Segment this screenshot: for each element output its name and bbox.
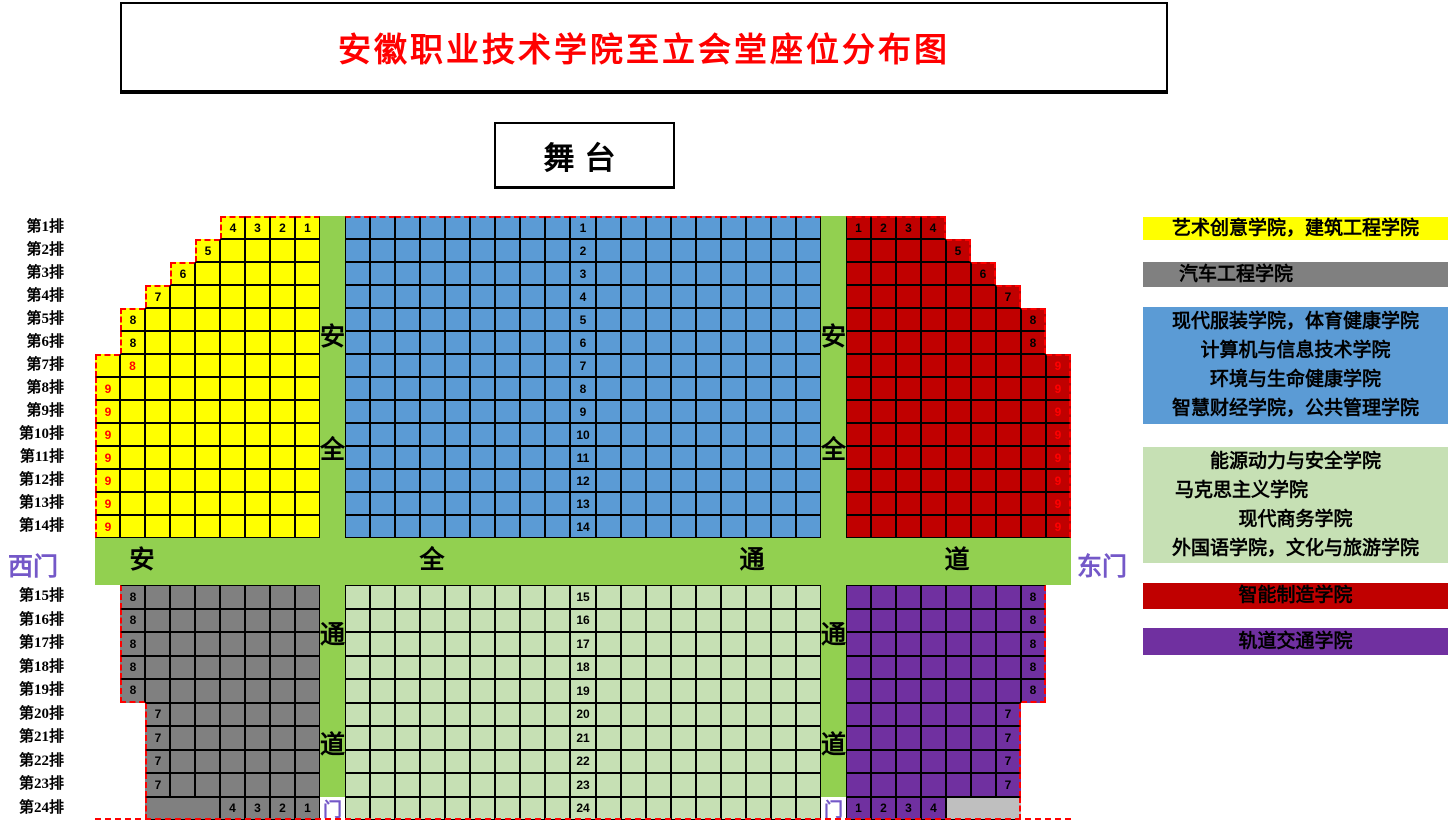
seat-cell — [395, 308, 420, 331]
seat-number-label: 7 — [145, 773, 170, 797]
seat-cell — [621, 492, 646, 515]
legend-item: 智能制造学院 — [1143, 583, 1448, 609]
seat-cell — [545, 239, 570, 262]
seat-cell — [846, 331, 871, 354]
seat-cell — [796, 703, 821, 727]
seat-cell — [245, 703, 270, 727]
seat-cell — [846, 632, 871, 656]
seat-number-label: 7 — [145, 750, 170, 774]
seat-cell — [746, 656, 771, 680]
seat-cell — [520, 773, 545, 797]
seat-cell — [395, 609, 420, 633]
seat-cell — [345, 469, 370, 492]
seat-cell — [545, 632, 570, 656]
seat-cell — [245, 423, 270, 446]
seat-cell — [345, 308, 370, 331]
seat-number-label: 7 — [996, 750, 1021, 774]
seat-cell — [420, 354, 445, 377]
seat-cell — [646, 679, 671, 703]
seat-cell — [170, 703, 195, 727]
seat-cell — [245, 515, 270, 538]
seat-cell — [796, 331, 821, 354]
row-label: 第17排 — [0, 632, 64, 656]
seat-cell — [295, 377, 320, 400]
seat-cell — [671, 239, 696, 262]
seat-cell — [395, 331, 420, 354]
row-label: 第1排 — [0, 216, 64, 239]
seat-cell — [771, 354, 796, 377]
seat-cell — [796, 469, 821, 492]
seat-cell — [746, 750, 771, 774]
seat-cell — [671, 492, 696, 515]
west-gate-label: 西门 — [2, 547, 64, 583]
seat-cell — [245, 656, 270, 680]
seat-cell — [495, 679, 520, 703]
seat-cell — [846, 750, 871, 774]
seat-cell — [621, 308, 646, 331]
seat-cell — [445, 331, 470, 354]
seat-cell — [946, 446, 971, 469]
seat-cell — [445, 750, 470, 774]
seat-cell — [295, 703, 320, 727]
seat-cell — [220, 469, 245, 492]
seat-cell — [996, 656, 1021, 680]
seat-cell — [420, 469, 445, 492]
seat-cell — [495, 703, 520, 727]
seat-cell — [495, 354, 520, 377]
seat-cell — [846, 492, 871, 515]
seat-cell — [896, 331, 921, 354]
seat-cell — [445, 308, 470, 331]
seat-number-label: 8 — [1021, 679, 1046, 703]
seat-cell — [871, 656, 896, 680]
seat-cell — [370, 400, 395, 423]
seat-cell — [495, 656, 520, 680]
seat-cell — [796, 423, 821, 446]
seat-cell — [646, 469, 671, 492]
vertical-aisle-char: 全 — [821, 437, 846, 465]
seat-cell — [696, 354, 721, 377]
seat-number-label: 1 — [295, 216, 320, 239]
seat-cell — [721, 216, 746, 239]
seat-cell — [796, 216, 821, 239]
seat-cell — [646, 354, 671, 377]
seat-cell — [495, 469, 520, 492]
seat-cell — [395, 377, 420, 400]
seat-cell — [145, 585, 170, 609]
legend-label: 马克思主义学院 — [1143, 476, 1448, 505]
row-number-cell: 16 — [570, 609, 596, 633]
seat-cell — [420, 703, 445, 727]
seat-cell — [671, 679, 696, 703]
seat-cell — [621, 726, 646, 750]
seat-cell — [270, 726, 295, 750]
seat-cell — [646, 726, 671, 750]
seat-cell — [120, 400, 145, 423]
seat-cell — [1021, 400, 1046, 423]
row-label: 第8排 — [0, 377, 64, 400]
seat-cell — [971, 331, 996, 354]
seat-cell — [946, 285, 971, 308]
seat-cell — [170, 308, 195, 331]
seat-cell — [696, 308, 721, 331]
seat-number-label: 9 — [1046, 515, 1071, 538]
seat-cell — [395, 469, 420, 492]
legend-label: 计算机与信息技术学院 — [1143, 336, 1448, 365]
stage-box: 舞台 — [494, 122, 675, 189]
row-number-cell: 13 — [570, 492, 596, 515]
seat-cell — [545, 308, 570, 331]
seat-cell — [395, 354, 420, 377]
seat-cell — [370, 750, 395, 774]
seat-cell — [771, 797, 796, 821]
seat-cell — [846, 609, 871, 633]
seat-cell — [345, 632, 370, 656]
seat-cell — [796, 585, 821, 609]
seat-cell — [996, 308, 1021, 331]
seat-number-label: 4 — [921, 216, 946, 239]
seat-cell — [771, 492, 796, 515]
seat-cell — [445, 377, 470, 400]
seat-cell — [195, 469, 220, 492]
row-number-cell: 17 — [570, 632, 596, 656]
seat-cell — [520, 515, 545, 538]
seat-cell — [520, 750, 545, 774]
seat-cell — [370, 423, 395, 446]
row-number-cell: 15 — [570, 585, 596, 609]
seat-cell — [295, 446, 320, 469]
seat-cell — [245, 726, 270, 750]
seat-cell — [871, 492, 896, 515]
seat-cell — [520, 632, 545, 656]
seat-cell — [495, 585, 520, 609]
seat-cell — [420, 308, 445, 331]
row-label: 第10排 — [0, 423, 64, 446]
seat-cell — [420, 679, 445, 703]
seat-cell — [846, 377, 871, 400]
seat-cell — [395, 632, 420, 656]
seat-cell — [621, 679, 646, 703]
seat-cell — [220, 285, 245, 308]
seat-cell — [796, 632, 821, 656]
seat-cell — [696, 656, 721, 680]
seat-cell — [921, 656, 946, 680]
seat-cell — [671, 308, 696, 331]
seat-cell — [1021, 469, 1046, 492]
seat-cell — [545, 726, 570, 750]
seat-cell — [170, 632, 195, 656]
seat-cell — [270, 308, 295, 331]
legend-label: 外国语学院，文化与旅游学院 — [1143, 534, 1448, 563]
seat-cell — [295, 354, 320, 377]
seat-cell — [721, 308, 746, 331]
vertical-aisle-char: 安 — [821, 324, 846, 352]
seat-cell — [545, 750, 570, 774]
seat-cell — [621, 354, 646, 377]
seat-cell — [921, 726, 946, 750]
seat-cell — [245, 308, 270, 331]
seat-cell — [721, 515, 746, 538]
seat-cell — [520, 609, 545, 633]
seat-cell — [270, 285, 295, 308]
seat-cell — [170, 423, 195, 446]
seat-number-label: 8 — [120, 656, 145, 680]
seat-cell — [470, 656, 495, 680]
seat-cell — [771, 469, 796, 492]
seat-cell — [871, 377, 896, 400]
seat-cell — [621, 773, 646, 797]
seat-cell — [420, 656, 445, 680]
seat-cell — [946, 377, 971, 400]
seat-cell — [871, 585, 896, 609]
seat-cell — [520, 262, 545, 285]
legend-item: 能源动力与安全学院马克思主义学院现代商务学院外国语学院，文化与旅游学院 — [1143, 447, 1448, 563]
seat-cell — [646, 308, 671, 331]
seat-cell — [721, 239, 746, 262]
seat-cell — [646, 446, 671, 469]
seat-number-label: 6 — [971, 262, 996, 285]
seat-cell — [470, 400, 495, 423]
seat-cell — [921, 632, 946, 656]
seat-cell — [596, 750, 621, 774]
seat-cell — [896, 515, 921, 538]
seat-cell — [245, 750, 270, 774]
row-number-cell: 9 — [570, 400, 596, 423]
seat-cell — [245, 632, 270, 656]
seat-cell — [871, 750, 896, 774]
seat-cell — [971, 377, 996, 400]
seat-cell — [846, 400, 871, 423]
row-label: 第13排 — [0, 492, 64, 515]
seat-number-label: 7 — [996, 703, 1021, 727]
seat-cell — [1021, 446, 1046, 469]
seat-cell — [896, 632, 921, 656]
seat-cell — [445, 239, 470, 262]
seat-cell — [445, 703, 470, 727]
seat-cell — [220, 262, 245, 285]
seat-cell — [921, 262, 946, 285]
seat-cell — [295, 400, 320, 423]
seat-cell — [445, 797, 470, 821]
seat-cell — [771, 515, 796, 538]
row-number-cell: 7 — [570, 354, 596, 377]
seat-cell — [746, 239, 771, 262]
seat-cell — [270, 703, 295, 727]
seat-number-label: 9 — [95, 423, 120, 446]
vertical-aisle-char: 通 — [821, 622, 846, 650]
seat-cell — [771, 679, 796, 703]
seat-cell — [846, 423, 871, 446]
seat-cell — [721, 679, 746, 703]
door-label: 门 — [320, 797, 345, 821]
seat-cell — [445, 726, 470, 750]
seat-cell — [495, 515, 520, 538]
seat-cell — [746, 609, 771, 633]
seat-cell — [696, 679, 721, 703]
seat-cell — [796, 446, 821, 469]
seat-cell — [1021, 377, 1046, 400]
seat-cell — [445, 492, 470, 515]
seat-cell — [495, 400, 520, 423]
seat-number-label: 9 — [1046, 469, 1071, 492]
seat-cell — [696, 797, 721, 821]
seat-cell — [996, 609, 1021, 633]
seat-cell — [520, 797, 545, 821]
merged-block — [145, 797, 220, 821]
seat-cell — [220, 423, 245, 446]
seat-cell — [295, 632, 320, 656]
seat-cell — [545, 400, 570, 423]
seat-cell — [195, 285, 220, 308]
seat-cell — [771, 773, 796, 797]
seat-number-label: 9 — [95, 492, 120, 515]
row-label: 第19排 — [0, 679, 64, 703]
seat-cell — [345, 656, 370, 680]
seat-cell — [1021, 515, 1046, 538]
seat-cell — [345, 726, 370, 750]
seat-number-label: 4 — [220, 216, 245, 239]
seat-cell — [946, 703, 971, 727]
seat-cell — [345, 239, 370, 262]
seat-cell — [771, 632, 796, 656]
seat-cell — [971, 515, 996, 538]
seat-number-label: 8 — [1021, 632, 1046, 656]
seat-cell — [621, 515, 646, 538]
seat-cell — [345, 797, 370, 821]
seat-cell — [621, 239, 646, 262]
seat-cell — [370, 726, 395, 750]
seat-cell — [370, 469, 395, 492]
seat-cell — [646, 377, 671, 400]
legend-item: 艺术创意学院，建筑工程学院 — [1143, 217, 1448, 240]
seat-cell — [796, 515, 821, 538]
seat-cell — [370, 285, 395, 308]
seat-number-label: 3 — [245, 797, 270, 821]
horizontal-aisle-char: 安 — [128, 547, 156, 577]
horizontal-aisle-char: 通 — [738, 547, 766, 577]
seat-cell — [220, 773, 245, 797]
seat-number-label: 9 — [1046, 354, 1071, 377]
seat-cell — [545, 773, 570, 797]
seat-cell — [345, 492, 370, 515]
seat-cell — [796, 377, 821, 400]
seat-cell — [596, 609, 621, 633]
seat-cell — [495, 632, 520, 656]
seat-cell — [145, 656, 170, 680]
seat-cell — [921, 354, 946, 377]
seat-cell — [896, 239, 921, 262]
seat-cell — [420, 446, 445, 469]
seat-cell — [896, 609, 921, 633]
row-number-cell: 12 — [570, 469, 596, 492]
seat-cell — [721, 750, 746, 774]
seat-cell — [971, 703, 996, 727]
seat-cell — [470, 216, 495, 239]
seat-cell — [545, 262, 570, 285]
seat-cell — [420, 285, 445, 308]
seat-cell — [395, 400, 420, 423]
seat-number-label: 7 — [145, 285, 170, 308]
seat-cell — [470, 423, 495, 446]
seat-cell — [921, 585, 946, 609]
east-gate-label: 东门 — [1071, 547, 1133, 583]
seat-cell — [696, 285, 721, 308]
seat-cell — [395, 750, 420, 774]
seat-cell — [946, 469, 971, 492]
seat-cell — [771, 308, 796, 331]
seat-cell — [245, 239, 270, 262]
seat-cell — [245, 609, 270, 633]
seat-cell — [871, 239, 896, 262]
seat-cell — [596, 679, 621, 703]
seat-number-label: 1 — [846, 797, 871, 821]
vertical-aisle-char: 道 — [821, 732, 846, 760]
seat-cell — [671, 773, 696, 797]
left-vertical-aisle-rear — [320, 585, 345, 797]
seat-cell — [170, 331, 195, 354]
row-number-cell: 18 — [570, 656, 596, 680]
seat-cell — [921, 285, 946, 308]
seat-cell — [345, 216, 370, 239]
seat-cell — [420, 377, 445, 400]
seat-cell — [596, 726, 621, 750]
seat-cell — [220, 609, 245, 633]
seat-cell — [470, 609, 495, 633]
seat-number-label: 8 — [120, 679, 145, 703]
seat-cell — [520, 285, 545, 308]
seat-cell — [445, 354, 470, 377]
seat-cell — [996, 679, 1021, 703]
seat-cell — [495, 797, 520, 821]
seat-cell — [345, 609, 370, 633]
seat-cell — [395, 423, 420, 446]
seat-number-label: 7 — [145, 703, 170, 727]
seat-cell — [871, 773, 896, 797]
seat-cell — [671, 331, 696, 354]
legend-label: 环境与生命健康学院 — [1143, 365, 1448, 394]
seat-cell — [545, 585, 570, 609]
seat-cell — [596, 469, 621, 492]
seat-cell — [971, 773, 996, 797]
seat-cell — [746, 679, 771, 703]
seat-cell — [545, 797, 570, 821]
seat-cell — [145, 400, 170, 423]
seat-cell — [370, 773, 395, 797]
seat-cell — [921, 773, 946, 797]
seat-number-label: 8 — [1021, 656, 1046, 680]
seat-cell — [545, 492, 570, 515]
seat-cell — [245, 285, 270, 308]
seat-cell — [921, 331, 946, 354]
bottom-dashed-boundary — [95, 818, 1071, 820]
seat-cell — [245, 446, 270, 469]
seat-cell — [971, 632, 996, 656]
seat-cell — [520, 354, 545, 377]
seat-number-label: 8 — [1021, 331, 1046, 354]
seat-cell — [270, 331, 295, 354]
seat-cell — [470, 469, 495, 492]
seat-number-label: 2 — [871, 216, 896, 239]
seat-number-label: 8 — [1021, 585, 1046, 609]
seat-cell — [295, 308, 320, 331]
seat-cell — [996, 423, 1021, 446]
seat-cell — [170, 400, 195, 423]
seat-cell — [495, 726, 520, 750]
seat-cell — [195, 377, 220, 400]
seat-cell — [896, 308, 921, 331]
seat-cell — [671, 632, 696, 656]
seat-cell — [771, 609, 796, 633]
